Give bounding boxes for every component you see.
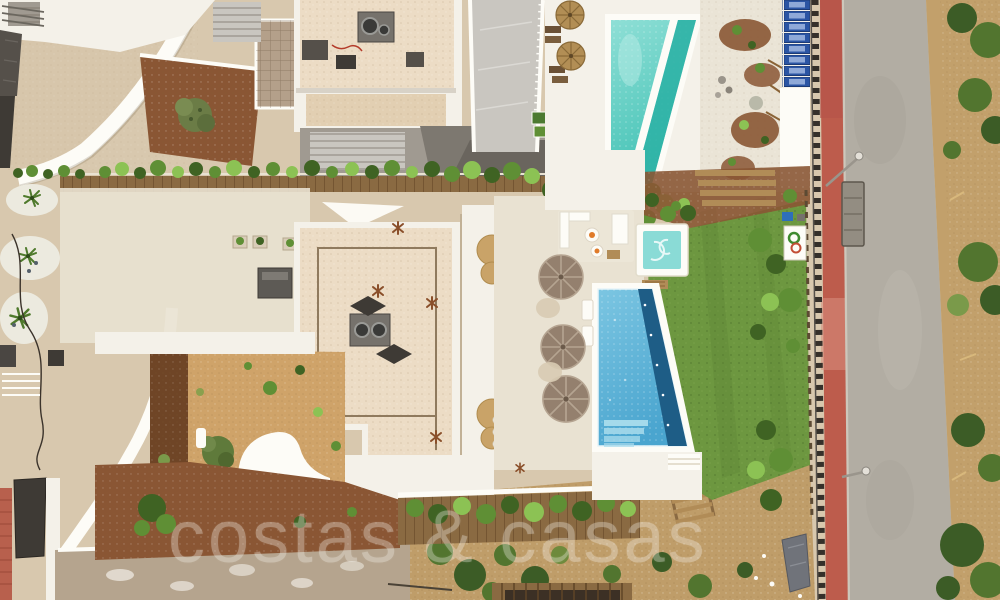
solar-panel-west-2: [48, 350, 64, 366]
dirt-garden-northwest: [140, 55, 262, 166]
bbq-outdoor-kitchen: [258, 268, 292, 298]
terrace-potted-plant-1: [680, 205, 696, 221]
deck-north-of-pool: [545, 150, 645, 210]
closed-parasol-2: [538, 362, 562, 382]
terrace-parasol-1: [539, 255, 583, 299]
outdoor-lounge-set: [558, 210, 634, 262]
white-lounger: [196, 428, 206, 448]
ac-unit-north: [358, 12, 394, 42]
gravel-garden-northeast: [700, 0, 783, 192]
dark-pergola-panel: [14, 478, 46, 558]
ac-unit-main: [350, 314, 390, 346]
north-building: [294, 0, 548, 176]
palapa-umbrella-1: [556, 1, 584, 29]
dumpster: [842, 182, 864, 246]
stone-roof-north: [256, 20, 300, 108]
aerial-photo: costas & casas: [0, 0, 1000, 600]
skylight-box-2: [336, 55, 356, 69]
glass-walkway: [470, 0, 544, 152]
skylight-box-3: [406, 52, 424, 67]
stairs-north-center: [213, 2, 261, 42]
palapa-umbrella-2: [557, 42, 585, 70]
west-plaza: [60, 188, 310, 343]
solar-panel-west-1: [0, 345, 16, 367]
deck-steps-to-lawn: [668, 454, 700, 470]
street-east: [811, 0, 1000, 600]
blue-crates-stack: [782, 0, 810, 88]
white-terrace-band: [95, 332, 315, 354]
pergola-frame: [492, 583, 632, 600]
red-tile-strip: [0, 488, 12, 600]
shadow-under-north-roof: [296, 88, 456, 93]
aerial-photo-canvas: [0, 0, 1000, 600]
planter-trio: [233, 236, 297, 250]
closed-parasol-1: [536, 298, 560, 318]
terrace-potted-plant-2: [671, 201, 681, 211]
skylight-box-1: [302, 40, 328, 60]
terrace-parasol-3: [543, 376, 589, 422]
